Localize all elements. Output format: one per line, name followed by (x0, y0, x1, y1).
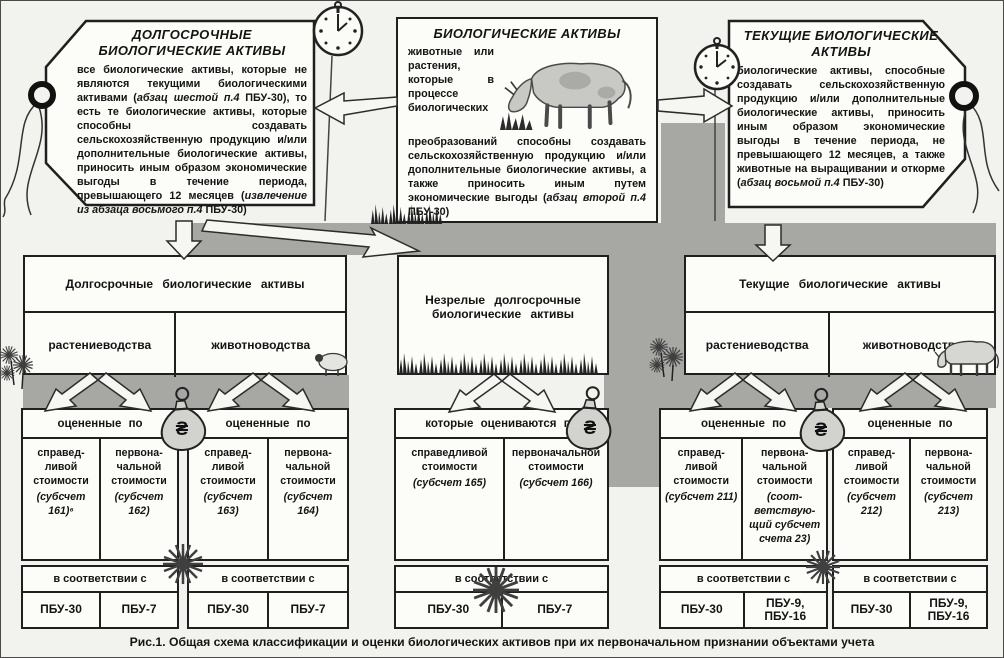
valuation-cell: справед­ливой стоимос­ти(субсчет 163) (187, 437, 269, 561)
figure-caption: Рис.1. Общая схема классификации и оценк… (1, 635, 1003, 649)
biological-assets-body: животные или растения, которые в процесс… (408, 45, 646, 219)
gray-band-fans-right (659, 375, 996, 408)
valuation-group-212-213: оцененные по справед­ливой стоимос­ти(су… (832, 408, 988, 629)
group-header: оцененные по (187, 408, 349, 439)
middle-current-box: Текущие биологические активы растениевод… (684, 255, 996, 375)
valuation-group-165-166: которые оцениваются по справедливой стои… (394, 408, 609, 629)
current-assets-definition-box: ТЕКУЩИЕ БИОЛОГИЧЕСКИЕ АКТИВЫ биологическ… (727, 19, 979, 209)
standard-cell: ПБУ-7 (267, 591, 349, 629)
accordance-row: в соответствии с (394, 565, 609, 593)
standard-cell: ПБУ-9, ПБУ-16 (743, 591, 829, 629)
valuation-cell: первона­чальной стоимости(субсчет 162) (99, 437, 179, 561)
valuation-cell: справед­ливой стоимости(субсчет 161)⁶ (21, 437, 101, 561)
valuation-cell: первона­чальной стоимости(субсчет 164) (267, 437, 349, 561)
accordance-row: в соответствии с (187, 565, 349, 593)
accordance-row: в соответствии с (21, 565, 179, 593)
classification-diagram: ДОЛГОСРОЧНЫЕ БИОЛОГИЧЕСКИЕ АКТИВЫ все би… (0, 0, 1004, 658)
group-header: оцененные по (832, 408, 988, 439)
arrow-right-icon (658, 89, 732, 122)
valuation-cell: справед­ливой стоимос­ти(субсчет 211) (659, 437, 743, 561)
biological-assets-definition-box: БИОЛОГИЧЕСКИЕ АКТИВЫ животные или растен… (396, 17, 658, 223)
longterm-assets-definition-box: ДОЛГОСРОЧНЫЕ БИОЛОГИЧЕСКИЕ АКТИВЫ все би… (31, 19, 316, 207)
valuation-group-161-162: оцененные по справед­ливой стоимости(суб… (21, 408, 179, 629)
middle-longterm-crop: растениеводства (25, 313, 176, 377)
group-header: которые оцениваются по (394, 408, 609, 439)
group-header: оцененные по (21, 408, 179, 439)
standard-cell: ПБУ-30 (394, 591, 503, 629)
standard-cell: ПБУ-30 (21, 591, 101, 629)
standard-cell: ПБУ-7 (501, 591, 610, 629)
middle-current-title: Текущие биологические активы (686, 257, 994, 311)
valuation-cell: справедливой стоимости(субсчет 165) (394, 437, 505, 561)
alarm-clock-icon (314, 2, 362, 221)
valuation-cell: первона­чальной стоимости(соот­ветствую­… (741, 437, 828, 561)
group-header: оцененные по (659, 408, 828, 439)
middle-current-crop: растениеводства (686, 313, 830, 377)
valuation-group-211: оцененные по справед­ливой стоимос­ти(су… (659, 408, 828, 629)
valuation-cell: первоначаль­ной стоимости(субсчет 166) (503, 437, 609, 561)
middle-longterm-livestock: животноводства (176, 313, 345, 377)
valuation-group-163-164: оцененные по справед­ливой стоимос­ти(су… (187, 408, 349, 629)
middle-longterm-box: Долгосрочные биологические активы растен… (23, 255, 347, 375)
accordance-row: в соответствии с (832, 565, 988, 593)
standard-cell: ПБУ-30 (659, 591, 745, 629)
gray-band-horizontal (187, 223, 996, 255)
middle-immature-box: Незрелые долгосрочные биологические акти… (397, 255, 609, 375)
gray-column-top (661, 123, 725, 255)
cow-icon (498, 51, 646, 135)
current-assets-title: ТЕКУЩИЕ БИОЛОГИЧЕСКИЕ АКТИВЫ (737, 28, 945, 61)
gray-band-fans-left (23, 375, 349, 408)
gray-column-lower (604, 375, 660, 487)
longterm-assets-body: все биологические активы, которые не явл… (77, 63, 307, 217)
standard-cell: ПБУ-30 (832, 591, 911, 629)
arrow-left-icon (315, 93, 397, 124)
standard-cell: ПБУ-7 (99, 591, 179, 629)
longterm-assets-title: ДОЛГОСРОЧНЫЕ БИОЛОГИЧЕСКИЕ АКТИВЫ (77, 27, 307, 60)
accordance-row: в соответствии с (659, 565, 828, 593)
valuation-cell: справед­ливой стоимос­ти(субсчет 212) (832, 437, 911, 561)
biological-assets-title: БИОЛОГИЧЕСКИЕ АКТИВЫ (408, 26, 646, 42)
standard-cell: ПБУ-9, ПБУ-16 (909, 591, 988, 629)
standard-cell: ПБУ-30 (187, 591, 269, 629)
fan-arrows-icon (449, 374, 555, 412)
valuation-cell: первона­чальной стоимости(субсчет 213) (909, 437, 988, 561)
middle-longterm-title: Долгосрочные биологические активы (25, 257, 345, 311)
middle-current-livestock: животноводства (830, 313, 994, 377)
current-assets-body: биологические активы, способные создават… (737, 64, 945, 190)
middle-immature-title: Незрелые долгосрочные биологические акти… (399, 257, 607, 357)
